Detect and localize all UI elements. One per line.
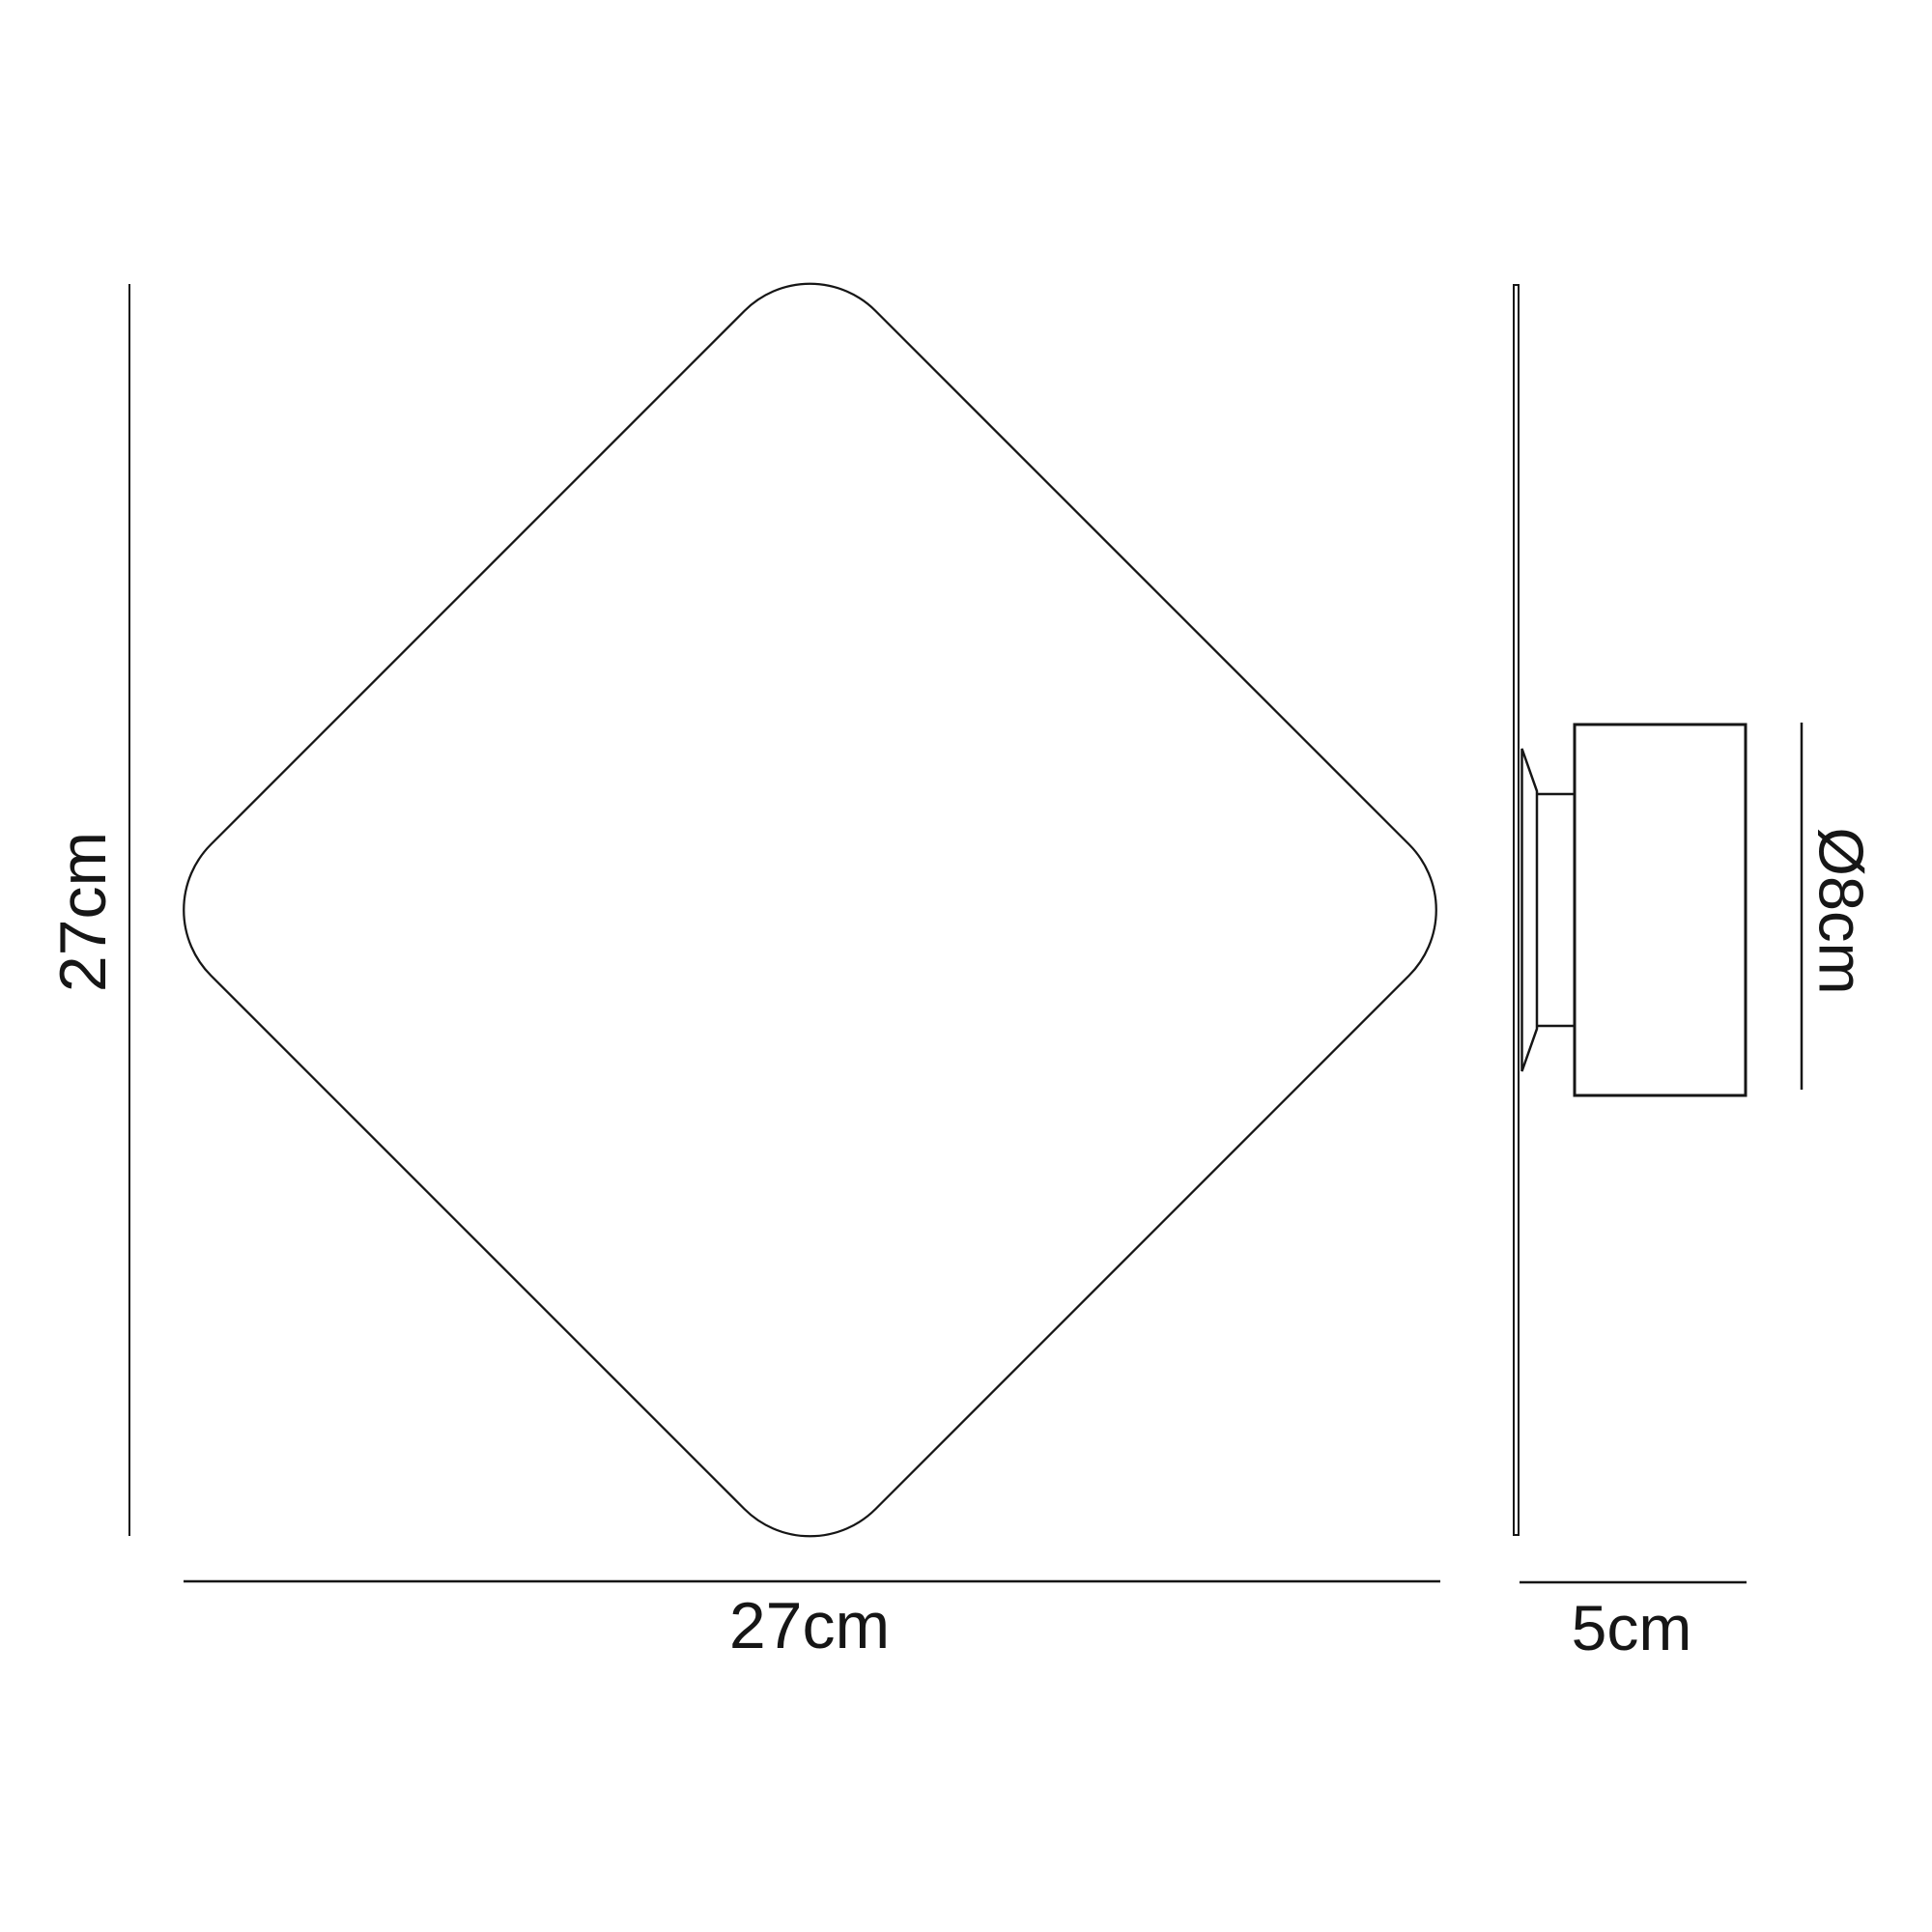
svg-text:5cm: 5cm bbox=[1572, 1592, 1692, 1663]
svg-text:27cm: 27cm bbox=[46, 832, 120, 992]
svg-text:27cm: 27cm bbox=[729, 1589, 890, 1662]
svg-text:Ø8cm: Ø8cm bbox=[1806, 827, 1877, 994]
